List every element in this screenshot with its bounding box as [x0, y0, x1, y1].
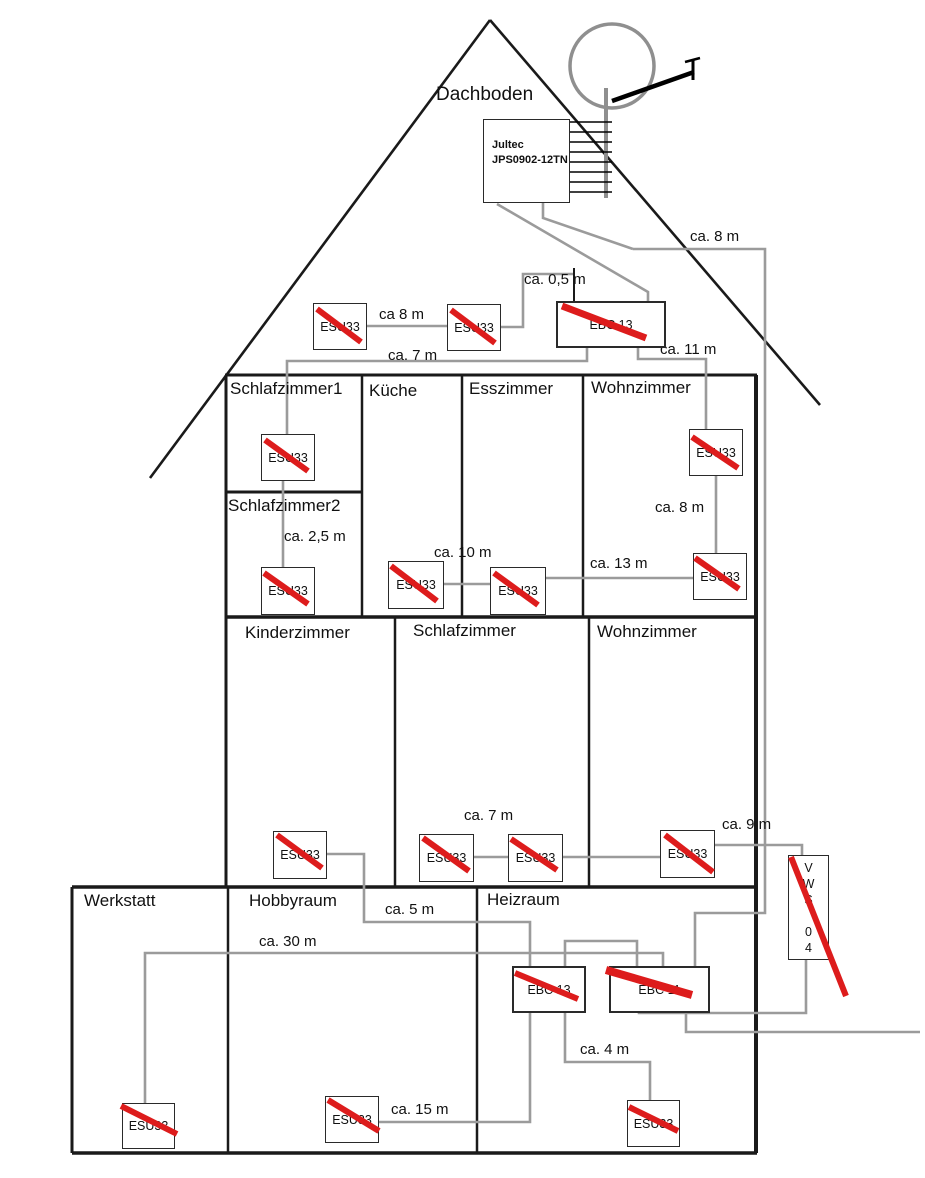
amplifier-ebc13-attic: EBC 13: [556, 301, 666, 348]
jultec-multiswitch: Jultec JPS0902-12TN: [483, 119, 570, 203]
outlet-esu33-wohnzimmer-og-lower: ESU33: [693, 553, 747, 600]
room-label-wohnzimmer-eg: Wohnzimmer: [597, 622, 697, 642]
room-label-schlafzimmer-eg: Schlafzimmer: [413, 621, 516, 641]
cable-jultec-to-right-riser: [543, 203, 633, 249]
cable-label-ca5: ca. 5 m: [385, 901, 434, 918]
room-label-kueche: Küche: [369, 381, 417, 401]
room-label-kinderzimmer: Kinderzimmer: [245, 623, 350, 643]
outlet-esu33-schlafzimmer2: ESU33: [261, 567, 315, 615]
cable-label-ca7-og: ca. 7 m: [388, 347, 437, 364]
satellite-dish-icon: [570, 24, 654, 108]
attic-label: Dachboden: [436, 84, 533, 106]
diagram-linework: [0, 0, 925, 1178]
outlet-esu33-esszimmer: ESU33: [490, 567, 546, 615]
outlet-esu33-kueche: ESU33: [388, 561, 444, 609]
outlet-esu33-hobbyraum: ESU33: [325, 1096, 379, 1143]
jultec-brand: Jultec: [492, 138, 569, 153]
outlet-esu33-schlafzimmer-eg-left: ESU33: [419, 834, 474, 882]
room-label-esszimmer: Esszimmer: [469, 379, 553, 399]
room-label-heizraum: Heizraum: [487, 890, 560, 910]
room-label-werkstatt: Werkstatt: [84, 891, 155, 911]
amplifier-ebc11-heizraum: EBC 11: [609, 966, 710, 1013]
device-vws04: V W S 0 4: [788, 855, 829, 960]
outlet-esu33-werkstatt: ESU33: [122, 1103, 175, 1149]
outlet-esu33-schlafzimmer1: ESU33: [261, 434, 315, 481]
cable-label-ca4: ca. 4 m: [580, 1041, 629, 1058]
house-structure: [72, 375, 757, 1153]
cable-label-ca10: ca. 10 m: [434, 544, 492, 561]
outlet-esu33-schlafzimmer-eg-right: ESU33: [508, 834, 563, 882]
cable-label-ca9: ca. 9 m: [722, 816, 771, 833]
cable-label-ca8-wz: ca. 8 m: [655, 499, 704, 516]
room-label-schlafzimmer1: Schlafzimmer1: [230, 379, 342, 399]
cable-label-ca25: ca. 2,5 m: [284, 528, 346, 545]
cable-label-ca15: ca. 15 m: [391, 1101, 449, 1118]
room-label-hobbyraum: Hobbyraum: [249, 891, 337, 911]
jultec-model: JPS0902-12TN: [492, 153, 569, 168]
outlet-esu33-kinderzimmer: ESU33: [273, 831, 327, 879]
amplifier-ebc13-heizraum: EBC 13: [512, 966, 586, 1013]
cable-label-ca30: ca. 30 m: [259, 933, 317, 950]
cable-label-ca05: ca. 0,5 m: [524, 271, 586, 288]
outlet-esu33-wohnzimmer-eg: ESU33: [660, 830, 715, 878]
cable-label-ca13: ca. 13 m: [590, 555, 648, 572]
outlet-esu33-heizraum: ESU33: [627, 1100, 680, 1147]
outlet-esu33-attic-left: ESU33: [313, 303, 367, 350]
cable-label-ca8-attic: ca 8 m: [379, 306, 424, 323]
house-wiring-diagram: Dachboden Jultec JPS0902-12TN ca. 8 m ca…: [0, 0, 925, 1178]
cable-label-ca11: ca. 11 m: [660, 341, 716, 358]
cable-label-ca8-right: ca. 8 m: [690, 228, 739, 245]
room-label-schlafzimmer2: Schlafzimmer2: [228, 496, 340, 516]
room-label-wohnzimmer-og: Wohnzimmer: [591, 378, 691, 398]
outlet-esu33-attic-mid: ESU33: [447, 304, 501, 351]
cable-label-ca7-eg: ca. 7 m: [464, 807, 513, 824]
outlet-esu33-wohnzimmer-og-upper: ESU33: [689, 429, 743, 476]
